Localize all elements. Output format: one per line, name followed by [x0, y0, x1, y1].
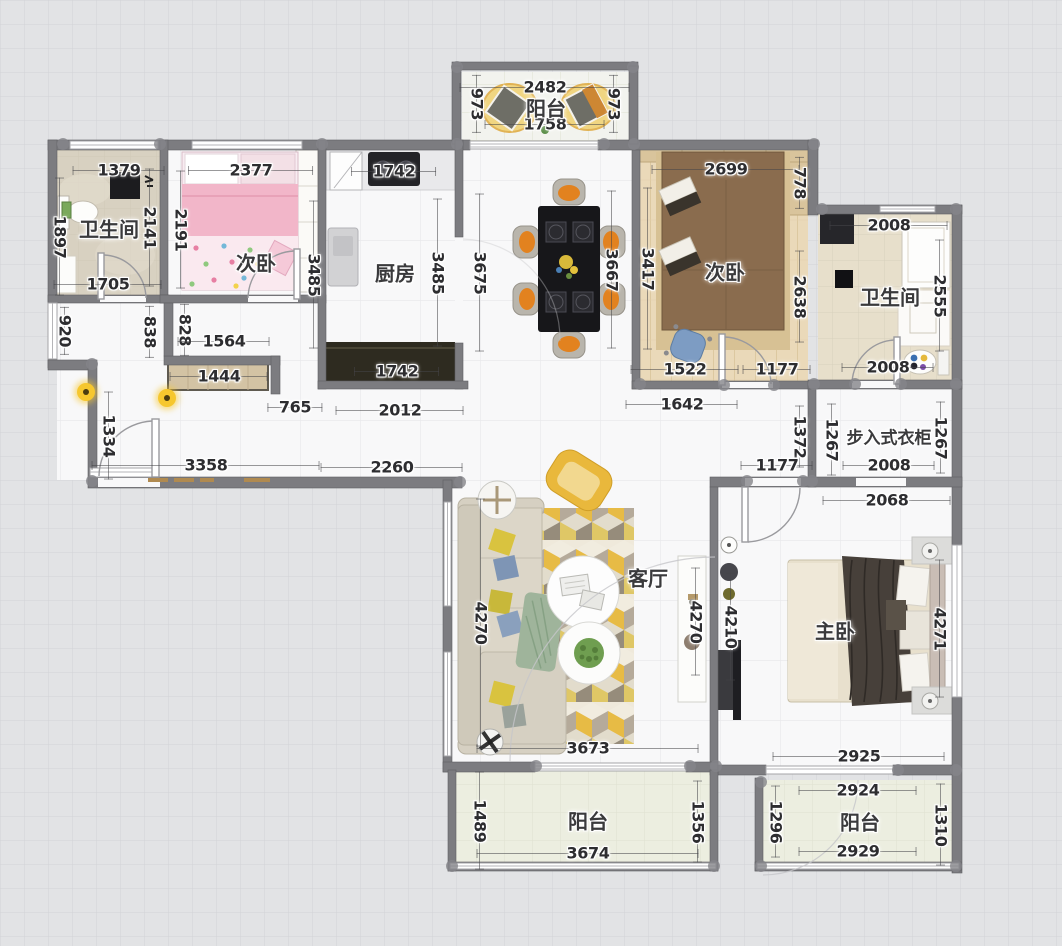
dimension-label[interactable]: 1372: [791, 416, 810, 459]
room-label[interactable]: 客厅: [628, 563, 668, 592]
room-label[interactable]: 阳台: [526, 93, 566, 122]
room-label[interactable]: 阳台: [568, 806, 608, 835]
room-label[interactable]: 卫生间: [79, 214, 139, 243]
dimension-label[interactable]: 3485: [305, 254, 324, 297]
dimension-label[interactable]: 1897: [51, 216, 70, 259]
dimension-label[interactable]: 2925: [838, 747, 881, 766]
ceiling-light-icon[interactable]: [158, 389, 176, 407]
room-label[interactable]: 次卧: [705, 257, 745, 286]
dimension-label[interactable]: 1334: [100, 415, 119, 458]
dimension-label[interactable]: 2141: [141, 207, 160, 250]
dimension-label[interactable]: 2377: [230, 161, 273, 180]
dimension-label[interactable]: 2924: [837, 781, 880, 800]
dimension-label[interactable]: 2555: [931, 275, 950, 318]
room-label[interactable]: 厨房: [375, 258, 415, 287]
dimension-label[interactable]: 1379: [98, 161, 141, 180]
room-label[interactable]: 步入式衣柜: [847, 424, 932, 449]
dimension-label[interactable]: 1267: [823, 419, 842, 462]
dimension-label[interactable]: 3485: [429, 252, 448, 295]
dimension-label[interactable]: 1564: [203, 332, 246, 351]
dimension-label[interactable]: 1742: [373, 162, 416, 181]
dimension-label[interactable]: 3674: [567, 844, 610, 863]
dimension-label[interactable]: 1310: [932, 804, 951, 847]
design-canvas[interactable]: 2482175897397313791897214117052377219134…: [0, 0, 1062, 946]
dimension-label[interactable]: 4270: [472, 602, 491, 645]
dimension-label[interactable]: 2008: [868, 456, 911, 475]
dimension-label[interactable]: 1177: [756, 360, 799, 379]
dimension-label[interactable]: 3673: [567, 739, 610, 758]
dimension-label[interactable]: 2638: [791, 276, 810, 319]
ceiling-light-icon[interactable]: [77, 383, 95, 401]
room-label[interactable]: 次卧: [236, 248, 276, 277]
dimension-label[interactable]: 1742: [376, 362, 419, 381]
dimension-label[interactable]: 4271: [931, 608, 950, 651]
room-label[interactable]: 阳台: [840, 807, 880, 836]
dimension-label[interactable]: 1705: [87, 275, 130, 294]
dimension-label[interactable]: 973: [468, 88, 487, 120]
dimension-label[interactable]: 3667: [603, 249, 622, 292]
room-label[interactable]: 卫生间: [860, 282, 920, 311]
dimension-label[interactable]: 3417: [639, 248, 658, 291]
dimension-label[interactable]: 3358: [185, 456, 228, 475]
dimension-label[interactable]: 2929: [837, 842, 880, 861]
dimension-label[interactable]: 1296: [767, 801, 786, 844]
dimension-label[interactable]: 1642: [661, 395, 704, 414]
dimension-label[interactable]: 2260: [371, 458, 414, 477]
dimension-label[interactable]: 4210: [722, 606, 741, 649]
dimension-label[interactable]: 2191: [172, 209, 191, 252]
dimension-label[interactable]: 1356: [689, 801, 708, 844]
dimension-label[interactable]: 2008: [868, 216, 911, 235]
dimension-label[interactable]: 778: [791, 167, 810, 199]
dimension-label[interactable]: 2699: [705, 160, 748, 179]
dimension-label[interactable]: 3675: [471, 252, 490, 295]
dimension-label[interactable]: 838: [141, 316, 160, 348]
dimension-label[interactable]: 1522: [664, 360, 707, 379]
dimension-label[interactable]: 920: [56, 315, 75, 347]
dimension-label[interactable]: 1489: [471, 800, 490, 843]
dimension-label[interactable]: 973: [605, 88, 624, 120]
dimension-label[interactable]: 4270: [687, 601, 706, 644]
dimension-label[interactable]: 1444: [198, 367, 241, 386]
dimension-label[interactable]: 765: [279, 398, 311, 417]
dimension-label[interactable]: 2068: [866, 491, 909, 510]
dimension-label[interactable]: 2008: [867, 358, 910, 377]
dimension-label[interactable]: 1177: [756, 456, 799, 475]
room-label[interactable]: 主卧: [815, 616, 855, 645]
label-layer: 2482175897397313791897214117052377219134…: [0, 0, 1062, 946]
dimension-label[interactable]: 2012: [379, 401, 422, 420]
dimension-label[interactable]: 1267: [932, 417, 951, 460]
